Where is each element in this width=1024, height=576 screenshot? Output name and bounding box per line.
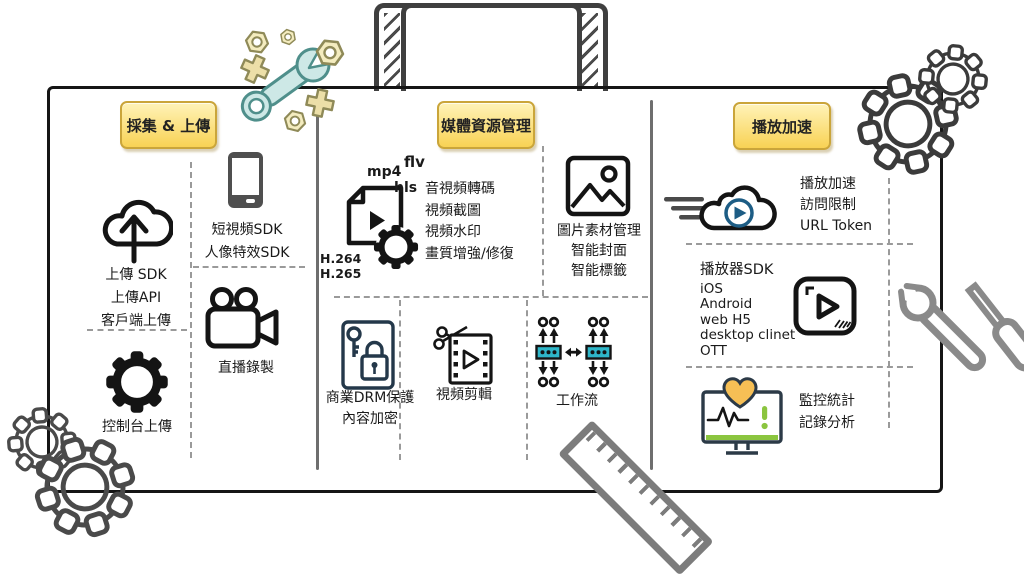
sdk-text: 短視頻SDK 人像特效SDK <box>186 219 308 265</box>
format-h265-label: H.265 <box>320 267 361 281</box>
short-video-sdk-label: 短視頻SDK <box>186 219 308 242</box>
section-title-capture-upload: 採集 & 上傳 <box>120 101 217 149</box>
content-encrypt-label: 內容加密 <box>321 409 419 430</box>
player-icon <box>792 275 858 339</box>
picture-icon <box>565 155 631 219</box>
play-accel-label: 播放加速 <box>800 174 900 195</box>
console-upload-label: 控制台上傳 <box>84 416 190 438</box>
dashed-divider <box>399 300 401 460</box>
hex-nut-icon <box>279 28 298 45</box>
upload-methods-text: 上傳 SDK 上傳API 客戶端上傳 <box>80 264 192 333</box>
workflow-icon <box>534 312 616 392</box>
client-upload-label: 客戶端上傳 <box>80 310 192 333</box>
android-label: Android <box>700 297 800 313</box>
web-h5-label: web H5 <box>700 313 800 329</box>
image-management-text: 圖片素材管理 智能封面 智能標籤 <box>551 221 647 281</box>
video-edit-icon <box>433 322 495 388</box>
screwdriver-icon <box>963 281 1024 372</box>
cloud-upload-icon <box>95 182 173 266</box>
dashed-divider <box>526 300 528 460</box>
suitcase-handle-inner <box>401 3 582 91</box>
live-record-text: 直播錄製 <box>208 357 284 379</box>
section-title-text: 播放加速 <box>752 116 812 137</box>
section-title-playback-acceleration: 播放加速 <box>733 102 831 150</box>
video-edit-text: 視頻剪輯 <box>428 384 500 406</box>
section-divider-2 <box>650 100 653 470</box>
live-record-label: 直播錄製 <box>208 357 284 379</box>
desktop-client-label: desktop clinet <box>700 328 800 344</box>
hex-nut-icon <box>245 31 270 53</box>
console-upload-text: 控制台上傳 <box>84 416 190 438</box>
dashed-divider <box>686 243 913 245</box>
workflow-label: 工作流 <box>546 390 608 412</box>
watermark-label: 視頻水印 <box>425 222 535 244</box>
smart-tag-label: 智能標籤 <box>551 261 647 281</box>
cdn-features-text: 播放加速 訪問限制 URL Token <box>800 174 900 237</box>
section-title-text: 媒體資源管理 <box>441 115 531 136</box>
upload-api-label: 上傳API <box>80 287 192 310</box>
diagram-page: { "diagram": { "kind": "hand-drawn toolb… <box>0 0 1024 571</box>
snapshot-label: 視頻截圖 <box>425 201 535 223</box>
player-platforms-text: 播放器SDK iOS Android web H5 desktop clinet… <box>700 263 800 359</box>
ott-label: OTT <box>700 344 800 360</box>
format-flv-label: flv <box>404 153 425 171</box>
record-analysis-label: 記錄分析 <box>799 412 889 434</box>
image-material-label: 圖片素材管理 <box>551 221 647 241</box>
transcode-label: 音視頻轉碼 <box>425 179 535 201</box>
monitor-health-icon <box>700 376 786 460</box>
player-sdk-label: 播放器SDK <box>700 263 800 279</box>
bolt-cross-icon <box>238 52 272 86</box>
monitor-text: 監控統計 記錄分析 <box>799 390 889 434</box>
section-divider-1 <box>316 100 319 470</box>
smart-cover-label: 智能封面 <box>551 241 647 261</box>
section-title-text: 採集 & 上傳 <box>127 115 211 136</box>
dashed-divider <box>686 366 913 368</box>
handle-hatch-right <box>582 13 598 86</box>
section-title-media-management: 媒體資源管理 <box>437 101 535 149</box>
handle-hatch-left <box>384 13 400 86</box>
format-h264-label: H.264 <box>320 252 361 266</box>
upload-sdk-label: 上傳 SDK <box>80 264 192 287</box>
monitor-stats-label: 監控統計 <box>799 390 889 412</box>
portrait-effect-sdk-label: 人像特效SDK <box>186 242 308 265</box>
drm-protect-label: 商業DRM保護 <box>321 388 419 409</box>
dashed-divider <box>542 146 544 296</box>
format-hls-label: hls <box>394 180 417 196</box>
phone-icon <box>227 151 265 210</box>
cloud-play-icon <box>662 163 790 235</box>
access-limit-label: 訪問限制 <box>800 195 900 216</box>
dashed-divider <box>334 296 648 298</box>
video-camera-icon <box>204 286 282 352</box>
transcode-features-text: 音視頻轉碼 視頻截圖 視頻水印 畫質增強/修復 <box>425 179 535 265</box>
format-mp4-label: mp4 <box>367 164 401 180</box>
dashed-divider <box>193 266 305 268</box>
gear-icon <box>104 349 170 415</box>
url-token-label: URL Token <box>800 216 900 237</box>
drm-lock-key-icon <box>340 319 396 391</box>
workflow-text: 工作流 <box>546 390 608 412</box>
drm-text: 商業DRM保護 內容加密 <box>321 388 419 430</box>
ios-label: iOS <box>700 282 800 298</box>
video-edit-label: 視頻剪輯 <box>428 384 500 406</box>
enhance-label: 畫質增強/修復 <box>425 244 535 266</box>
